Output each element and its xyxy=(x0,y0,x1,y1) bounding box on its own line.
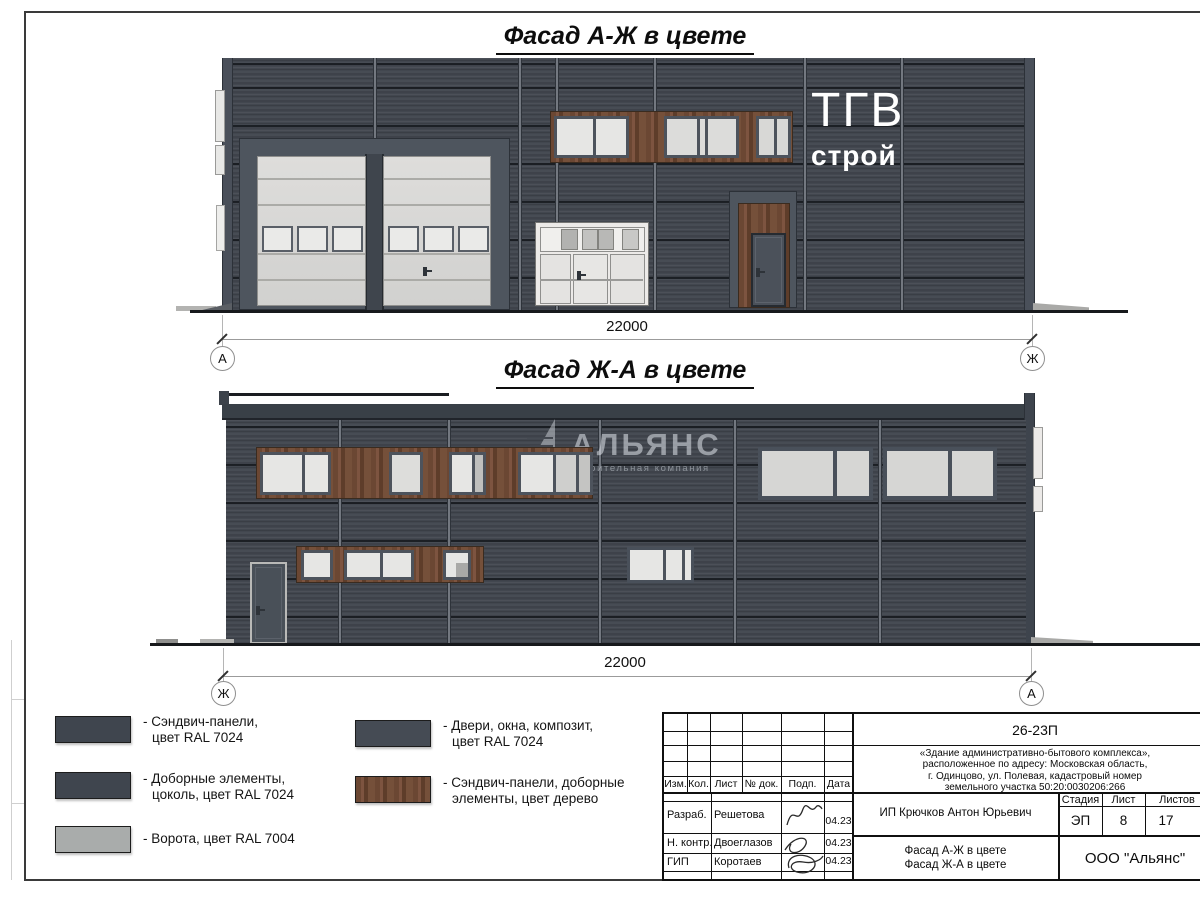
tb-col-podp: Подп. xyxy=(781,778,824,790)
lower-window-band xyxy=(296,546,484,583)
glazing-transom-line xyxy=(540,279,643,281)
logo-line-1: ТГВ xyxy=(811,87,951,135)
gate-section-line xyxy=(258,204,365,206)
window xyxy=(883,447,997,500)
tb-line xyxy=(664,761,853,762)
downspout xyxy=(1033,486,1043,512)
garage-gate-left xyxy=(257,156,366,306)
sheet-frame-top xyxy=(24,11,1200,13)
gate-window xyxy=(297,226,328,252)
tb-client: ИП Крючков Антон Юрьевич xyxy=(853,807,1058,819)
gate-section-line xyxy=(384,279,490,281)
facade-ja-drawing: АЛЬЯНС строительная компания xyxy=(226,393,1032,645)
window xyxy=(443,550,471,580)
gate-section-line xyxy=(258,178,365,180)
gate-section-line xyxy=(258,279,365,281)
tb-line xyxy=(664,792,853,794)
tb-col-data: Дата xyxy=(824,778,853,790)
legend-swatch-sandwich xyxy=(55,716,131,743)
parapet-stub xyxy=(219,391,229,405)
dimension-value: 22000 xyxy=(527,318,727,335)
tb-line xyxy=(664,801,853,802)
panel-joint xyxy=(803,58,807,310)
window-tinted-pane xyxy=(475,455,483,492)
window xyxy=(554,116,629,158)
tb-line xyxy=(664,776,853,777)
tb-role: ГИП xyxy=(667,856,689,868)
panel-joint xyxy=(878,420,882,645)
tb-sheet-value: 8 xyxy=(1102,813,1145,828)
tb-subject: Фасад А-Ж в цвете Фасад Ж-А в цвете xyxy=(853,844,1058,872)
garage-gate-right xyxy=(383,156,491,306)
window xyxy=(664,116,739,158)
glazing-pane-tinted xyxy=(561,229,578,250)
window-tinted-pane xyxy=(456,563,468,577)
gate-window xyxy=(458,226,489,252)
sheet-margin-divider xyxy=(11,803,24,804)
window-tinted-pane xyxy=(579,455,590,492)
door-handle xyxy=(577,271,581,280)
tb-name: Коротаев xyxy=(714,856,762,868)
window xyxy=(260,452,331,495)
tb-line xyxy=(664,731,853,732)
window xyxy=(301,550,333,580)
garage-middle-post xyxy=(365,154,384,310)
tb-line xyxy=(1058,806,1200,807)
tb-sheet-label: Лист xyxy=(1102,794,1145,806)
legend-label: - Сэндвич-панели, доборные элементы, цве… xyxy=(443,775,625,806)
window-mullion xyxy=(682,550,685,580)
watermark-title: АЛЬЯНС xyxy=(571,429,722,460)
gate-section-line xyxy=(384,204,490,206)
window xyxy=(518,452,593,495)
legend-swatch-gates xyxy=(55,826,131,853)
axis-marker-a: А xyxy=(1019,681,1044,706)
window xyxy=(627,547,694,583)
tb-doc-code: 26-23П xyxy=(853,722,1200,738)
tb-company: ООО "Альянс" xyxy=(1060,850,1200,867)
tb-address: «Здание административно-бытового комплек… xyxy=(859,748,1200,793)
legend-label: - Сэндвич-панели, цвет RAL 7024 xyxy=(143,714,258,745)
tb-col-kol: Кол. xyxy=(687,778,710,790)
window-mullion xyxy=(833,451,837,496)
corner-column xyxy=(1024,58,1035,310)
sheet-margin-line xyxy=(11,640,12,880)
door-inner-line xyxy=(255,567,282,639)
tb-stage-label: Стадия xyxy=(1059,794,1102,806)
gate-handle xyxy=(423,267,427,276)
facade-aj-title: Фасад А-Ж в цвете xyxy=(55,22,1195,51)
glazing-pane-tinted xyxy=(598,229,614,250)
window xyxy=(449,452,486,495)
entry-door-leaf xyxy=(751,233,786,307)
door-handle xyxy=(256,606,260,615)
window-mullion xyxy=(774,119,777,155)
window-mullion xyxy=(302,455,305,492)
tb-line xyxy=(853,835,1200,837)
window-mullion xyxy=(697,119,700,155)
panel-joint xyxy=(518,58,522,310)
ground-line xyxy=(150,643,1200,646)
window-mullion xyxy=(380,553,383,577)
gate-window xyxy=(388,226,419,252)
panel-joint xyxy=(653,58,657,310)
parapet-line xyxy=(226,393,449,396)
window xyxy=(389,452,423,495)
downspout xyxy=(1033,427,1043,479)
title-block: Изм. Кол. Лист № док. Подп. Дата Разраб.… xyxy=(662,712,1200,881)
axis-marker-zh: Ж xyxy=(211,681,236,706)
gate-section-line xyxy=(258,253,365,255)
extension-line xyxy=(222,315,223,348)
entry-door xyxy=(250,562,287,644)
tb-col-izm: Изм. xyxy=(664,778,687,790)
downspout xyxy=(215,90,225,142)
tb-date: 04.23 xyxy=(824,815,853,827)
window-mullion xyxy=(705,119,708,155)
window-mullion xyxy=(948,451,952,496)
glazing-pane-tinted xyxy=(622,229,639,250)
entrance-glazing xyxy=(535,222,649,306)
tb-col-doc: № док. xyxy=(742,778,781,790)
legend-label: - Доборные элементы, цоколь, цвет RAL 70… xyxy=(143,771,294,802)
facade-ja-wall: АЛЬЯНС строительная компания xyxy=(226,420,1026,645)
watermark-subtitle: строительная компания xyxy=(571,463,722,474)
tb-name: Решетова xyxy=(714,809,764,821)
legend-swatch-wood xyxy=(355,776,431,803)
legend-label: - Ворота, цвет RAL 7004 xyxy=(143,831,295,847)
glazing-pane-tinted xyxy=(582,229,598,250)
window-mullion xyxy=(663,550,666,580)
window xyxy=(758,447,873,500)
downspout xyxy=(215,145,225,175)
signature xyxy=(781,832,825,878)
sheet-frame-left xyxy=(24,11,26,881)
facade-ja-title: Фасад Ж-А в цвете xyxy=(55,356,1195,385)
gate-window xyxy=(423,226,454,252)
tb-date: 04.23 xyxy=(824,855,853,867)
tb-stage-value: ЭП xyxy=(1059,813,1102,828)
drawing-sheet: Фасад А-Ж в цвете xyxy=(0,0,1200,900)
legend-label: - Двери, окна, композит, цвет RAL 7024 xyxy=(443,718,593,749)
tb-col-list: Лист xyxy=(710,778,742,790)
window-tinted-pane xyxy=(556,455,576,492)
facade-aj-drawing: ТГВ строй xyxy=(222,58,1033,310)
dimension-line xyxy=(222,339,1032,340)
window xyxy=(756,116,791,158)
dimension-value: 22000 xyxy=(525,654,725,671)
downspout xyxy=(216,205,225,251)
tgv-stroy-logo: ТГВ строй xyxy=(811,87,951,170)
tb-date: 04.23 xyxy=(824,837,853,849)
legend-swatch-doors xyxy=(355,720,431,747)
tb-sheets-label: Листов xyxy=(1145,794,1200,806)
window-mullion xyxy=(593,119,596,155)
window-band-wood xyxy=(550,111,793,163)
legend-swatch-trim xyxy=(55,772,131,799)
extension-line xyxy=(1032,315,1033,348)
logo-line-2: строй xyxy=(811,142,951,170)
tb-role: Н. контр. xyxy=(667,837,712,849)
upper-window-band xyxy=(256,447,593,499)
tb-line xyxy=(664,745,853,746)
gate-window xyxy=(332,226,363,252)
door-handle xyxy=(756,268,760,277)
signature xyxy=(783,797,823,831)
tb-name: Двоеглазов xyxy=(714,837,772,849)
dimension-line xyxy=(223,676,1031,677)
gate-window xyxy=(262,226,293,252)
sheet-margin-divider xyxy=(11,699,24,700)
tb-sheets-value: 17 xyxy=(1145,813,1187,828)
tb-role: Разраб. xyxy=(667,809,707,821)
tb-line xyxy=(853,745,1200,746)
gate-section-line xyxy=(384,178,490,180)
ground-line xyxy=(190,310,1128,313)
entry-door-surround xyxy=(729,191,797,308)
gate-section-line xyxy=(384,253,490,255)
window xyxy=(344,550,414,580)
